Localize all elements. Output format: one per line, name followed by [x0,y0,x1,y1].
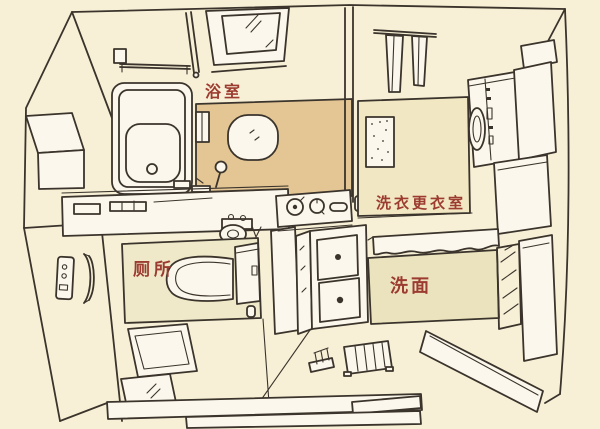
door-rail-block [196,112,209,142]
floor-mat-1 [128,324,197,377]
tall-cabinet [519,235,557,361]
wall-remote [56,257,74,300]
washbasin-label: 洗面 [390,275,432,297]
divider-wall [271,227,299,334]
textured-bath-mat [366,117,394,167]
washbasin-floor [368,250,499,324]
bathroom-label: 浴室 [205,82,243,101]
vanity-drawers [296,225,368,334]
toilet-label: 厕所 [133,260,175,280]
wash-bowl-icon [228,115,278,160]
duckboard-mat [344,341,393,376]
toilet-brush [247,306,255,317]
laundry-label: 洗衣更衣室 [376,194,466,212]
floorplan-illustration: 浴室 [0,0,600,429]
